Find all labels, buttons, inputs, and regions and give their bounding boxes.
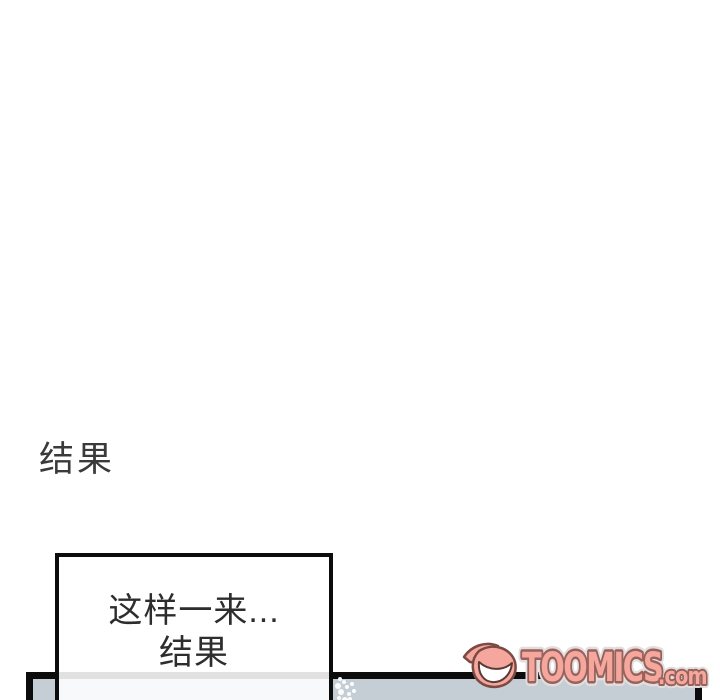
snow-speckles bbox=[338, 677, 342, 681]
speech-line-2: 结果 bbox=[59, 632, 329, 674]
comic-page: 结果 这样一来... 结果 TOOMICS .com TOOMICS .com bbox=[0, 0, 720, 700]
toomics-watermark: TOOMICS .com TOOMICS .com bbox=[462, 638, 718, 692]
toomics-grin-icon bbox=[464, 644, 516, 687]
watermark-suffix-text: .com bbox=[658, 663, 707, 691]
toomics-logo: TOOMICS .com TOOMICS .com bbox=[462, 638, 718, 692]
watermark-brand-text: TOOMICS bbox=[522, 645, 662, 691]
speech-line-1: 这样一来... bbox=[59, 590, 329, 632]
speech-box: 这样一来... 结果 bbox=[55, 553, 333, 700]
narration-text: 结果 bbox=[39, 441, 115, 479]
